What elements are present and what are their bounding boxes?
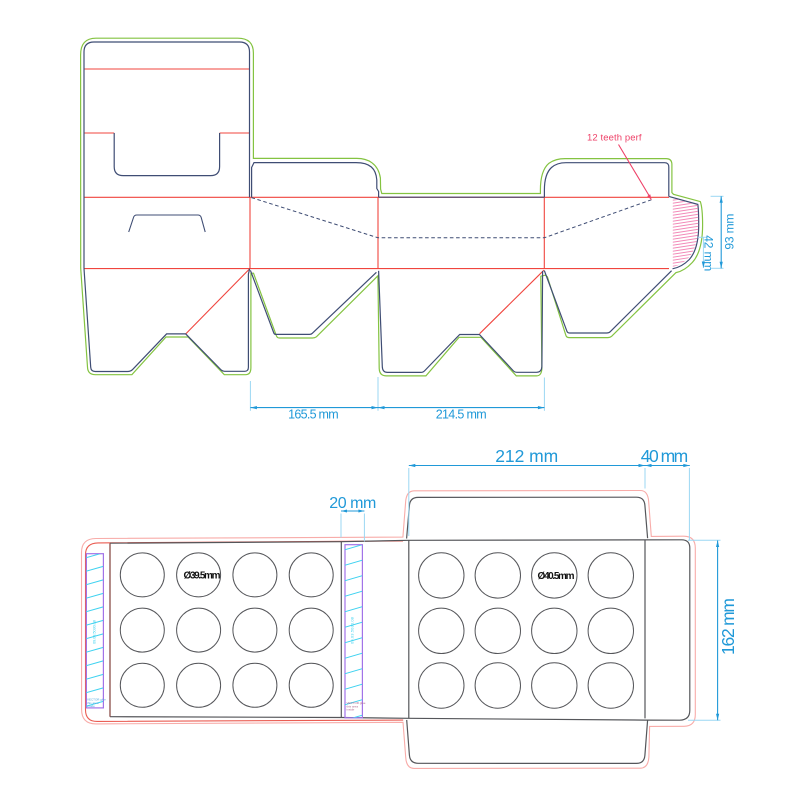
svg-text:12 teeth perf: 12 teeth perf <box>587 133 642 144</box>
svg-text:inside: inside <box>347 708 355 712</box>
svg-text:09.03.5030.08: 09.03.5030.08 <box>350 616 355 644</box>
svg-text:165.5 mm: 165.5 mm <box>288 408 339 422</box>
svg-text:93 mm: 93 mm <box>723 214 737 250</box>
svg-text:09.03.5030.08: 09.03.5030.08 <box>92 619 97 644</box>
svg-text:20 mm: 20 mm <box>329 495 376 512</box>
svg-text:inside: inside <box>87 704 95 708</box>
svg-text:Ø39.5mm: Ø39.5mm <box>184 571 221 582</box>
svg-text:162 mm: 162 mm <box>718 598 738 655</box>
svg-text:212 mm: 212 mm <box>495 446 558 466</box>
svg-text:214.5 mm: 214.5 mm <box>436 408 487 422</box>
svg-text:Ø40.5mm: Ø40.5mm <box>538 571 575 582</box>
svg-text:42 mm: 42 mm <box>702 235 716 271</box>
svg-text:40 mm: 40 mm <box>641 446 689 466</box>
